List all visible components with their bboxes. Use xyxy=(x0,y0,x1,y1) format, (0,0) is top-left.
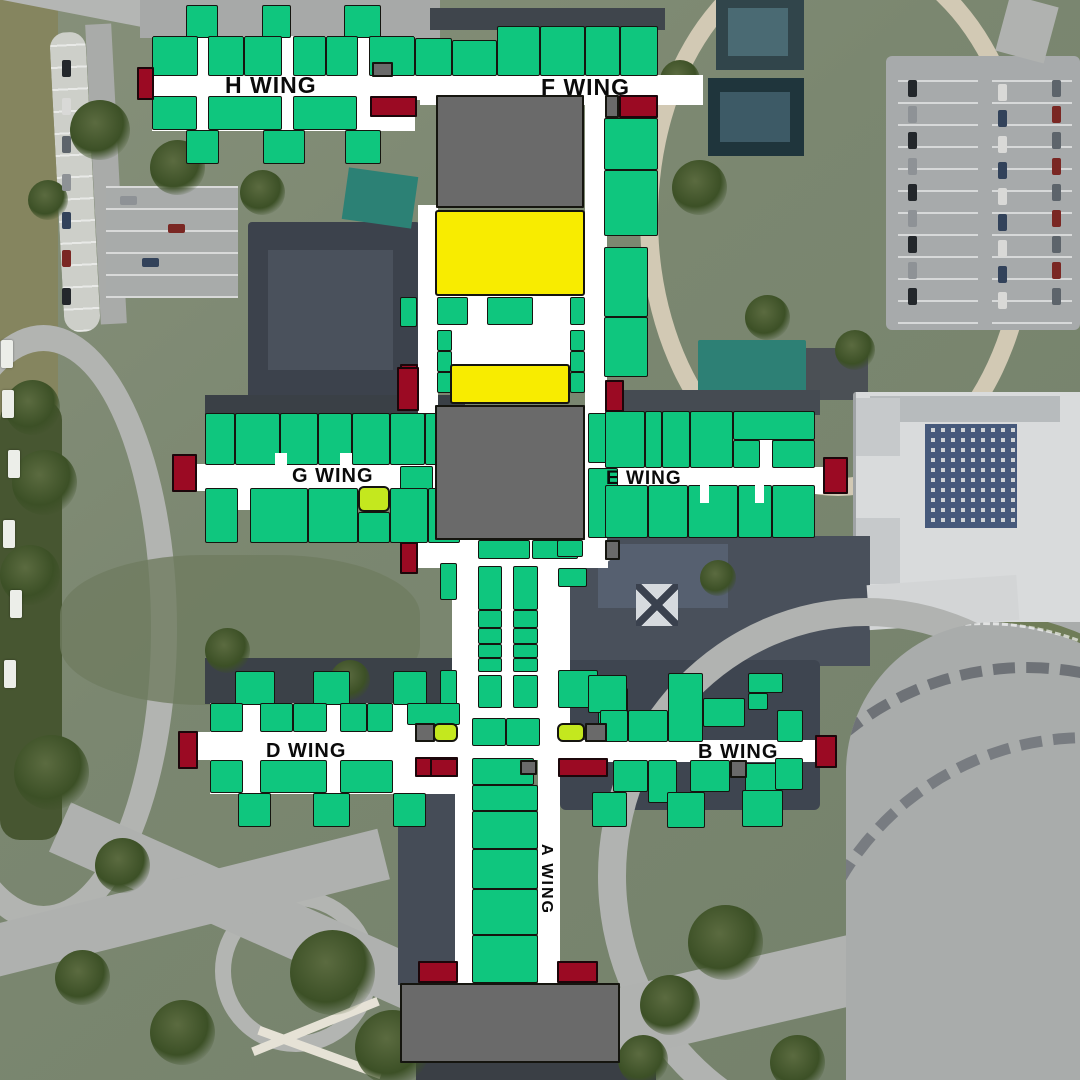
corridor xyxy=(452,556,570,742)
green-room-block xyxy=(390,413,425,465)
green-room-block xyxy=(437,297,468,325)
green-room-block xyxy=(205,413,235,465)
red-block xyxy=(605,380,624,412)
red-block xyxy=(418,961,458,983)
red-block xyxy=(823,457,848,494)
corridor xyxy=(455,758,473,985)
gray-core-block xyxy=(415,723,435,742)
red-block xyxy=(370,96,417,117)
green-room-block xyxy=(662,411,690,468)
green-room-block xyxy=(238,793,271,827)
green-room-block xyxy=(585,26,620,76)
green-room-block xyxy=(352,413,390,465)
yellow-area-block xyxy=(435,210,585,296)
green-room-block xyxy=(313,793,350,827)
green-room-block xyxy=(452,40,497,76)
green-room-block xyxy=(313,671,350,705)
green-room-block xyxy=(472,849,538,889)
chartreuse-room-block xyxy=(358,486,390,512)
wing-label-f: F WING xyxy=(541,76,630,99)
green-room-block xyxy=(748,693,768,710)
chartreuse-room-block xyxy=(557,723,585,742)
green-room-block xyxy=(340,760,393,793)
green-room-block xyxy=(748,673,783,693)
green-room-block xyxy=(293,36,326,76)
green-room-block xyxy=(437,330,452,351)
green-room-block xyxy=(570,351,585,372)
green-room-block xyxy=(250,488,308,543)
green-room-block xyxy=(648,485,688,538)
green-room-block xyxy=(340,703,367,732)
green-room-block xyxy=(570,372,585,393)
green-room-block xyxy=(186,130,219,164)
green-room-block xyxy=(415,38,452,76)
red-block xyxy=(397,367,419,411)
corridor-notch xyxy=(760,440,772,468)
green-room-block xyxy=(604,247,648,317)
green-room-block xyxy=(645,411,662,468)
green-room-block xyxy=(605,485,648,538)
green-room-block xyxy=(393,793,426,827)
wing-label-a: A WING xyxy=(538,844,554,915)
wing-label-e: E WING xyxy=(606,469,682,488)
green-room-block xyxy=(358,512,390,543)
green-room-block xyxy=(260,703,293,732)
red-block xyxy=(178,731,198,769)
gray-core-block xyxy=(435,405,585,540)
green-room-block xyxy=(293,96,357,130)
green-room-block xyxy=(345,130,381,164)
green-room-block xyxy=(540,26,585,76)
gray-core-block xyxy=(436,95,584,208)
green-room-block xyxy=(210,760,243,793)
green-room-block xyxy=(688,485,738,538)
corridor-notch xyxy=(238,487,250,510)
green-room-block xyxy=(487,297,533,325)
corridor-notch xyxy=(275,453,287,465)
chartreuse-room-block xyxy=(433,723,458,742)
green-room-block xyxy=(472,889,538,935)
green-room-block xyxy=(440,563,457,600)
green-room-block xyxy=(478,540,530,559)
green-room-block xyxy=(668,673,703,742)
green-room-block xyxy=(558,568,587,587)
campus-satellite-map: H WING F WING G WING E WING D WING B WIN… xyxy=(0,0,1080,1080)
green-room-block xyxy=(478,644,502,658)
green-room-block xyxy=(570,330,585,351)
green-room-block xyxy=(260,760,327,793)
green-room-block xyxy=(205,488,238,543)
green-room-block xyxy=(210,703,243,732)
green-room-block xyxy=(513,675,538,708)
green-room-block xyxy=(262,5,291,38)
green-room-block xyxy=(703,698,745,727)
green-room-block xyxy=(152,36,198,76)
green-room-block xyxy=(186,5,218,38)
green-room-block xyxy=(208,36,244,76)
green-room-block xyxy=(772,440,815,468)
red-block xyxy=(430,758,458,777)
gray-core-block xyxy=(520,760,537,775)
green-room-block xyxy=(742,790,783,827)
green-room-block xyxy=(588,675,627,713)
green-room-block xyxy=(208,96,282,130)
green-room-block xyxy=(152,96,197,130)
green-room-block xyxy=(400,297,417,327)
green-room-block xyxy=(407,703,460,725)
green-room-block xyxy=(478,658,502,672)
green-room-block xyxy=(513,644,538,658)
corridor-notch xyxy=(755,485,764,503)
green-room-block xyxy=(244,36,282,76)
green-room-block xyxy=(733,440,760,468)
wing-label-d: D WING xyxy=(266,741,346,761)
floorplan-overlay xyxy=(0,0,1080,1080)
red-block xyxy=(557,961,598,983)
green-room-block xyxy=(513,566,538,610)
green-room-block xyxy=(613,760,648,792)
green-room-block xyxy=(344,5,381,38)
green-room-block xyxy=(775,758,803,790)
green-room-block xyxy=(513,610,538,628)
green-room-block xyxy=(592,792,627,827)
green-room-block xyxy=(263,130,305,164)
green-room-block xyxy=(235,413,280,465)
green-room-block xyxy=(628,710,668,742)
green-room-block xyxy=(472,935,538,983)
red-block xyxy=(137,67,154,100)
green-room-block xyxy=(478,610,502,628)
corridor-notch xyxy=(700,485,709,503)
gray-core-block xyxy=(372,62,393,77)
gray-core-block xyxy=(605,540,620,560)
green-room-block xyxy=(513,628,538,644)
green-room-block xyxy=(506,718,540,746)
green-room-block xyxy=(605,411,645,468)
green-room-block xyxy=(604,118,658,170)
green-room-block xyxy=(745,763,777,792)
green-room-block xyxy=(667,792,705,828)
wing-label-h: H WING xyxy=(225,74,317,97)
green-room-block xyxy=(513,658,538,672)
red-block xyxy=(172,454,197,492)
green-room-block xyxy=(393,671,427,705)
green-room-block xyxy=(690,760,730,792)
red-block xyxy=(815,735,837,768)
green-room-block xyxy=(326,36,358,76)
green-room-block xyxy=(367,703,393,732)
green-room-block xyxy=(472,718,506,746)
red-block xyxy=(400,542,418,574)
yellow-area-block xyxy=(450,364,570,404)
green-room-block xyxy=(235,671,275,705)
green-room-block xyxy=(497,26,540,76)
green-room-block xyxy=(472,785,538,811)
green-room-block xyxy=(478,628,502,644)
green-room-block xyxy=(690,411,733,468)
wing-label-g: G WING xyxy=(292,466,374,486)
corridor-notch xyxy=(340,453,352,465)
red-block xyxy=(558,758,608,777)
green-room-block xyxy=(570,297,585,325)
green-room-block xyxy=(604,170,658,236)
green-room-block xyxy=(308,488,358,543)
green-room-block xyxy=(733,411,815,440)
green-room-block xyxy=(620,26,658,76)
gray-core-block xyxy=(585,723,607,742)
green-room-block xyxy=(390,488,428,543)
green-room-block xyxy=(772,485,815,538)
green-room-block xyxy=(472,811,538,849)
green-room-block xyxy=(478,675,502,708)
gray-core-block xyxy=(400,983,620,1063)
green-room-block xyxy=(777,710,803,742)
green-room-block xyxy=(604,317,648,377)
wing-label-b: B WING xyxy=(698,742,778,762)
green-room-block xyxy=(293,703,327,732)
green-room-block xyxy=(557,540,583,557)
green-room-block xyxy=(478,566,502,610)
